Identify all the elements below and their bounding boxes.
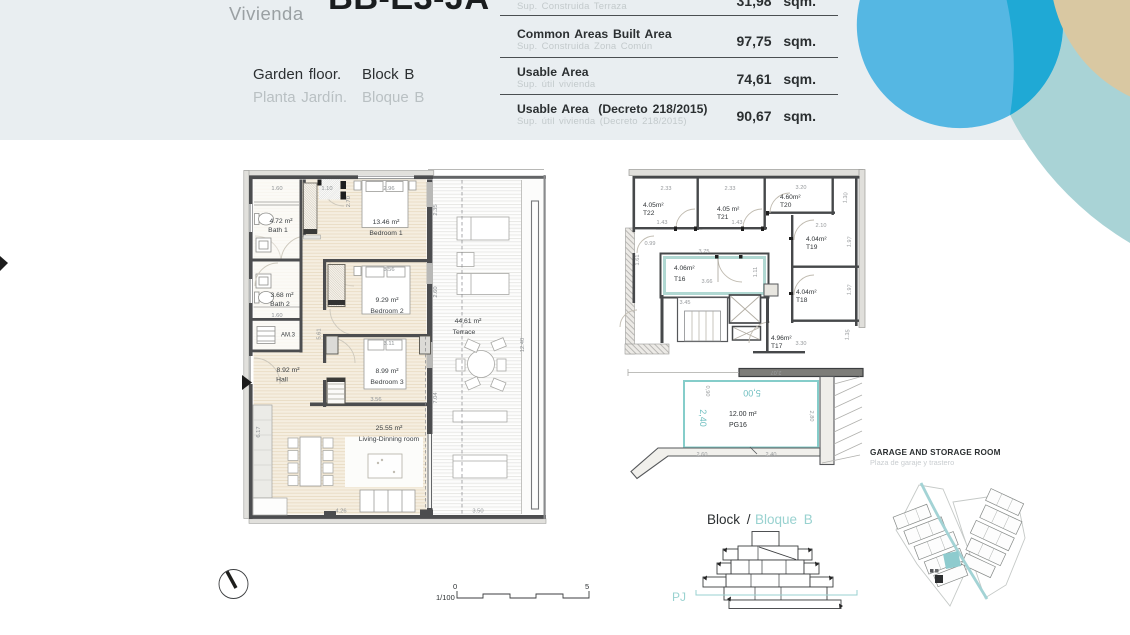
svg-text:Bath 2: Bath 2 (270, 301, 290, 308)
svg-text:PJ: PJ (672, 590, 686, 604)
svg-text:Bloque B: Bloque B (755, 512, 813, 527)
svg-text:1.35: 1.35 (845, 329, 852, 340)
svg-text:2.33: 2.33 (661, 186, 672, 192)
svg-text:2,40: 2,40 (698, 409, 708, 427)
svg-text:Block /: Block / (707, 512, 751, 527)
svg-text:5.61: 5.61 (317, 328, 323, 339)
svg-text:0,90: 0,90 (704, 386, 710, 397)
svg-text:T19: T19 (806, 244, 818, 251)
svg-text:3.66: 3.66 (702, 279, 713, 285)
svg-text:3.30: 3.30 (796, 341, 807, 347)
svg-text:25.55 m²: 25.55 m² (376, 425, 404, 432)
svg-text:2.96: 2.96 (383, 186, 394, 192)
svg-text:12.40: 12.40 (520, 338, 526, 353)
svg-text:9.29 m²: 9.29 m² (375, 297, 399, 304)
svg-text:5: 5 (585, 582, 589, 591)
svg-text:6.17: 6.17 (256, 426, 262, 437)
svg-text:2.35: 2.35 (433, 204, 439, 215)
svg-text:Hall: Hall (276, 377, 288, 384)
svg-text:4.04m²: 4.04m² (796, 289, 817, 296)
svg-text:8.92 m²: 8.92 m² (276, 367, 300, 374)
svg-text:2,60: 2,60 (697, 452, 708, 458)
svg-text:1/100: 1/100 (436, 593, 455, 602)
svg-text:2,07: 2,07 (771, 369, 782, 375)
svg-text:5,00: 5,00 (743, 388, 761, 398)
svg-text:3.50: 3.50 (472, 509, 483, 515)
svg-text:44,61 m²: 44,61 m² (455, 318, 483, 325)
svg-text:4.60m²: 4.60m² (780, 194, 801, 201)
svg-text:13.46 m²: 13.46 m² (373, 219, 401, 226)
svg-text:1.10: 1.10 (321, 186, 332, 192)
svg-text:Terrace: Terrace (453, 329, 476, 336)
svg-text:2,40: 2,40 (766, 452, 777, 458)
svg-text:3.56: 3.56 (370, 397, 381, 403)
svg-text:1.60: 1.60 (271, 186, 282, 192)
svg-text:Plaza de garaje y trastero: Plaza de garaje y trastero (870, 458, 954, 467)
svg-text:2.10: 2.10 (816, 223, 827, 229)
svg-text:Bedroom 1: Bedroom 1 (369, 230, 402, 237)
svg-text:1.60: 1.60 (271, 313, 282, 319)
svg-text:1.97: 1.97 (847, 236, 854, 247)
svg-text:4.96m²: 4.96m² (771, 335, 792, 342)
svg-text:3.75: 3.75 (699, 249, 710, 255)
svg-text:12.00 m²: 12.00 m² (729, 411, 757, 418)
svg-text:1.43: 1.43 (732, 220, 743, 226)
svg-text:0: 0 (453, 582, 457, 591)
svg-text:4.26: 4.26 (335, 509, 346, 515)
svg-text:4.05m²: 4.05m² (643, 202, 664, 209)
svg-text:3.45: 3.45 (680, 300, 691, 306)
svg-text:7.04: 7.04 (433, 392, 439, 404)
svg-text:T17: T17 (771, 343, 783, 350)
svg-text:2.70: 2.70 (346, 196, 352, 207)
svg-text:3.11: 3.11 (384, 341, 395, 347)
svg-text:3.56: 3.56 (383, 267, 394, 273)
svg-text:Bedroom 2: Bedroom 2 (370, 308, 403, 315)
svg-text:8.99 m²: 8.99 m² (375, 368, 399, 375)
svg-text:0.99: 0.99 (645, 241, 656, 247)
svg-text:1.11: 1.11 (753, 267, 759, 277)
svg-text:1.30: 1.30 (843, 192, 850, 203)
svg-text:2,80: 2,80 (808, 411, 814, 422)
svg-text:T16: T16 (674, 276, 686, 283)
svg-text:2.33: 2.33 (725, 186, 736, 192)
svg-text:3.68 m²: 3.68 m² (270, 292, 294, 299)
svg-text:2.60: 2.60 (433, 286, 439, 297)
svg-text:Bedroom 3: Bedroom 3 (370, 379, 403, 386)
svg-text:3.20: 3.20 (796, 185, 807, 191)
svg-text:1.61: 1.61 (635, 255, 641, 266)
svg-text:4.04m²: 4.04m² (806, 236, 827, 243)
svg-text:T21: T21 (717, 214, 729, 221)
svg-text:1.97: 1.97 (847, 284, 854, 295)
svg-text:T18: T18 (796, 297, 808, 304)
svg-text:Living-Dinning room: Living-Dinning room (359, 436, 420, 443)
svg-text:Bath 1: Bath 1 (268, 227, 288, 234)
svg-text:AM.3: AM.3 (281, 333, 296, 339)
svg-text:1.43: 1.43 (657, 220, 668, 226)
svg-text:4.72 m²: 4.72 m² (269, 218, 293, 225)
svg-text:GARAGE AND STORAGE ROOM: GARAGE AND STORAGE ROOM (870, 448, 1001, 457)
svg-text:T22: T22 (643, 210, 655, 217)
svg-text:T20: T20 (780, 202, 792, 209)
svg-text:4.05 m²: 4.05 m² (717, 206, 740, 213)
svg-text:4.06m²: 4.06m² (674, 265, 695, 272)
svg-text:PG16: PG16 (729, 422, 747, 429)
